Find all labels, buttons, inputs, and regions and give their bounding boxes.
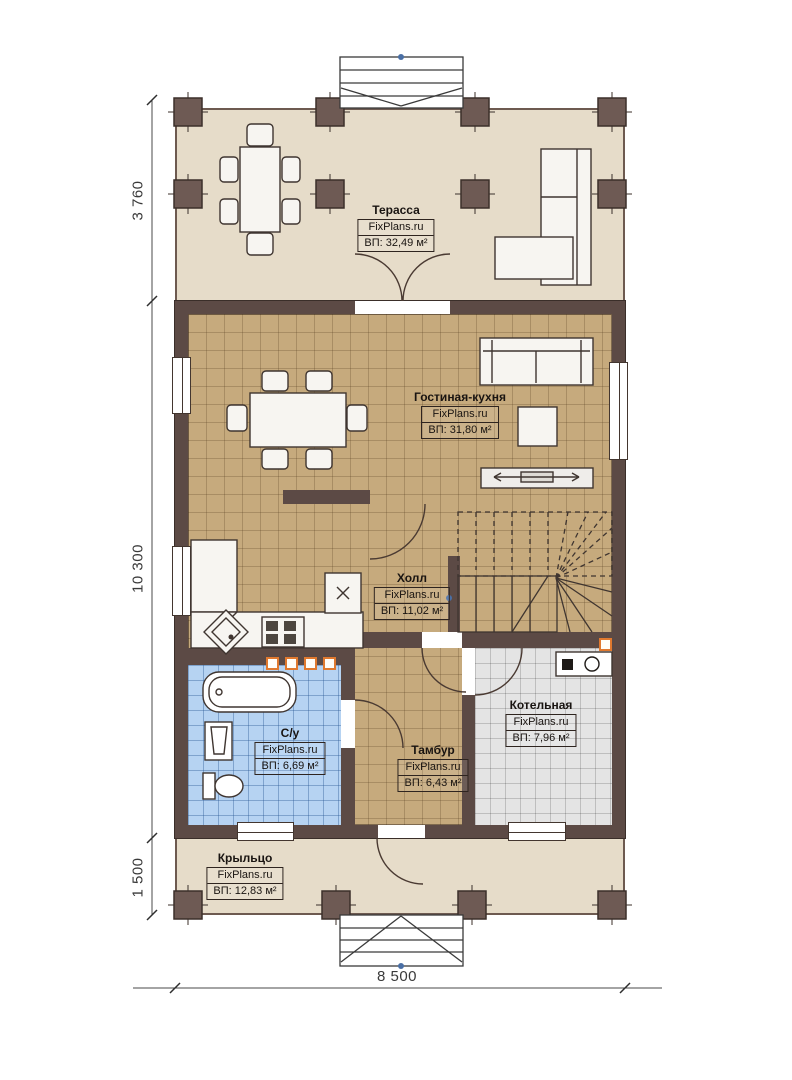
kitchen-fixtures: [191, 540, 363, 654]
column-post: [168, 92, 208, 132]
stairs-lower-flight: [458, 576, 612, 632]
column-post: [168, 174, 208, 214]
watermark-site: FixPlans.ru: [375, 588, 449, 604]
front-door-arc: [377, 838, 423, 884]
stairs-upper-flight: [458, 512, 612, 578]
room-info-box: FixPlans.ru ВП: 32,49 м²: [357, 219, 434, 252]
kitchen-counter-left: [191, 540, 237, 612]
floor-plan-canvas: Терасса FixPlans.ru ВП: 32,49 м² Гостина…: [0, 0, 792, 1080]
staircase: [446, 512, 612, 632]
sofa-living: [480, 338, 593, 385]
room-name: Гостиная-кухня: [414, 391, 506, 404]
dining-table-living: [227, 371, 367, 469]
room-label-vestibule: Тамбур FixPlans.ru ВП: 6,43 м²: [397, 744, 468, 792]
room-name: Котельная: [505, 699, 576, 712]
room-area: ВП: 31,80 м²: [422, 423, 497, 438]
watermark-site: FixPlans.ru: [358, 220, 433, 236]
room-name: Тамбур: [397, 744, 468, 757]
dimension-porch-depth: 1 500: [130, 838, 147, 918]
tv-stand: [481, 468, 593, 488]
terrace-steps: [340, 54, 463, 108]
room-area: ВП: 32,49 м²: [358, 236, 433, 251]
vestibule-door-arc: [422, 648, 466, 692]
room-label-porch: Крыльцо FixPlans.ru ВП: 12,83 м²: [206, 852, 283, 900]
boiler-door-arc: [475, 648, 522, 695]
kitchen-stove: [262, 617, 304, 647]
terrace-door-right-arc: [403, 254, 450, 301]
room-info-box: FixPlans.ru ВП: 31,80 м²: [421, 406, 498, 439]
room-info-box: FixPlans.ru ВП: 12,83 м²: [206, 867, 283, 900]
room-name: Холл: [374, 572, 450, 585]
room-info-box: FixPlans.ru ВП: 11,02 м²: [374, 587, 450, 620]
room-label-living-kitchen: Гостиная-кухня FixPlans.ru ВП: 31,80 м²: [414, 391, 506, 439]
room-label-hall: Холл FixPlans.ru ВП: 11,02 м²: [374, 572, 450, 620]
boiler-unit: [556, 652, 612, 676]
dimension-house-width: 8 500: [357, 968, 437, 985]
watermark-site: FixPlans.ru: [255, 743, 324, 759]
bathroom-door-arc: [355, 700, 403, 748]
dimension-house-depth: 10 300: [130, 529, 147, 609]
terrace-door-left-arc: [355, 254, 402, 301]
room-name: Крыльцо: [206, 852, 283, 865]
watermark-site: FixPlans.ru: [398, 760, 467, 776]
room-label-bathroom: С/у FixPlans.ru ВП: 6,69 м²: [254, 727, 325, 775]
handle-dot: [398, 54, 404, 60]
coffee-table: [518, 407, 557, 446]
column-post: [455, 174, 495, 214]
column-post: [592, 92, 632, 132]
dimension-terrace-depth: 3 760: [130, 161, 147, 241]
toilet: [203, 773, 243, 799]
watermark-site: FixPlans.ru: [506, 715, 575, 731]
watermark-site: FixPlans.ru: [207, 868, 282, 884]
living-door-arc: [370, 504, 425, 559]
plan-linework: [0, 0, 792, 1080]
room-info-box: FixPlans.ru ВП: 6,69 м²: [254, 742, 325, 775]
column-post: [310, 174, 350, 214]
room-name: С/у: [254, 727, 325, 740]
room-label-boiler: Котельная FixPlans.ru ВП: 7,96 м²: [505, 699, 576, 747]
room-info-box: FixPlans.ru ВП: 6,43 м²: [397, 759, 468, 792]
room-info-box: FixPlans.ru ВП: 7,96 м²: [505, 714, 576, 747]
column-post: [168, 885, 208, 925]
dining-table-terrace: [220, 124, 300, 255]
kitchen-appliance: [325, 573, 361, 613]
column-post: [592, 174, 632, 214]
porch-steps: [340, 915, 463, 969]
watermark-site: FixPlans.ru: [422, 407, 497, 423]
room-label-terrace: Терасса FixPlans.ru ВП: 32,49 м²: [357, 204, 434, 252]
washbasin: [205, 722, 232, 760]
bathtub: [203, 672, 296, 712]
room-area: ВП: 11,02 м²: [375, 604, 449, 619]
room-area: ВП: 12,83 м²: [207, 884, 282, 899]
room-area: ВП: 6,43 м²: [398, 776, 467, 791]
living-furniture: [227, 338, 593, 488]
corner-sofa-terrace: [495, 149, 591, 285]
room-area: ВП: 7,96 м²: [506, 731, 575, 746]
column-post: [592, 885, 632, 925]
room-area: ВП: 6,69 м²: [255, 759, 324, 774]
room-name: Терасса: [357, 204, 434, 217]
